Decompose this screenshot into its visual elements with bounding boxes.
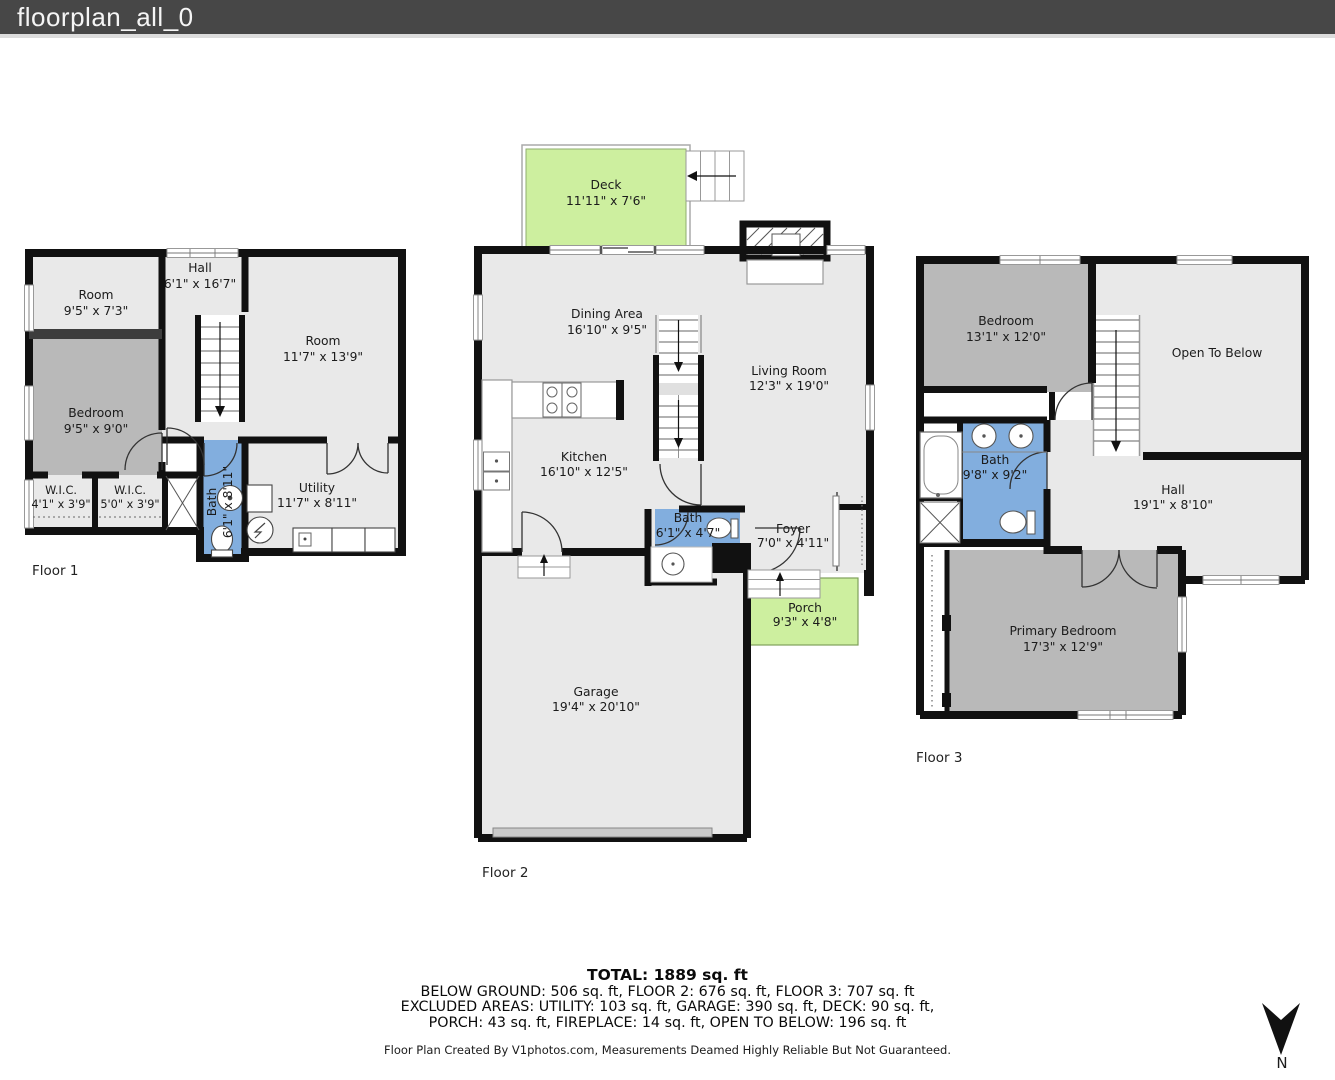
utility-dims: 11'7" x 8'11" bbox=[277, 496, 357, 510]
floor-3-plan: Bedroom 13'1" x 12'0" Open To Below Bath… bbox=[905, 245, 1320, 775]
floor-1-plan: Room 9'5" x 7'3" Hall 6'1" x 16'7" Room … bbox=[20, 240, 440, 590]
wic1-dims: 4'1" x 3'9" bbox=[31, 498, 90, 511]
summary-line-2: EXCLUDED AREAS: UTILITY: 103 sq. ft, GAR… bbox=[0, 1000, 1335, 1015]
summary-line-1: BELOW GROUND: 506 sq. ft, FLOOR 2: 676 s… bbox=[0, 985, 1335, 1000]
deck-dims: 11'11" x 7'6" bbox=[566, 194, 646, 208]
hall3-name: Hall bbox=[1161, 483, 1185, 497]
room-b-name: Room bbox=[305, 334, 340, 348]
deck-name: Deck bbox=[591, 178, 623, 192]
title-bar: floorplan_all_0 bbox=[0, 0, 1335, 38]
deck-stairs bbox=[686, 151, 744, 201]
primary-name: Primary Bedroom bbox=[1009, 624, 1116, 638]
porch-name: Porch bbox=[788, 601, 822, 615]
bath3-name: Bath bbox=[981, 453, 1010, 467]
room-a-dims: 9'5" x 7'3" bbox=[64, 304, 128, 318]
bath2-name: Bath bbox=[674, 511, 703, 525]
floor1-stairs bbox=[201, 315, 239, 422]
room-a-name: Room bbox=[78, 288, 113, 302]
hall-dims: 6'1" x 16'7" bbox=[164, 277, 236, 291]
north-arrow: N bbox=[1245, 995, 1305, 1070]
dining-dims: 16'10" x 9'5" bbox=[567, 323, 647, 337]
north-arrow-icon bbox=[1262, 1003, 1300, 1055]
bedroom3-dims: 13'1" x 12'0" bbox=[966, 330, 1046, 344]
bath-dims: 6'1" x 8'11" bbox=[221, 466, 235, 538]
floor-2-plan: Deck 11'11" x 7'6" Dining Area 16'10" x … bbox=[470, 140, 880, 885]
utility-name: Utility bbox=[299, 481, 335, 495]
porch-steps bbox=[748, 570, 820, 598]
wic2-dims: 5'0" x 3'9" bbox=[100, 498, 159, 511]
hall-name: Hall bbox=[188, 261, 212, 275]
floorplan-viewer: floorplan_all_0 bbox=[0, 0, 1335, 1080]
wic2-name: W.I.C. bbox=[114, 484, 146, 497]
bedroom-name: Bedroom bbox=[68, 406, 124, 420]
garage-name: Garage bbox=[573, 685, 618, 699]
bath3-dims: 9'8" x 9'2" bbox=[963, 468, 1027, 482]
summary-line-3: PORCH: 43 sq. ft, FIREPLACE: 14 sq. ft, … bbox=[0, 1016, 1335, 1031]
open-below-label: Open To Below bbox=[1172, 346, 1263, 360]
garage-dims: 19'4" x 20'10" bbox=[552, 700, 640, 714]
floor3-stairs bbox=[1093, 315, 1140, 456]
foyer-dims: 7'0" x 4'11" bbox=[757, 536, 829, 550]
hall3-dims: 19'1" x 8'10" bbox=[1133, 498, 1213, 512]
bath-name: Bath bbox=[205, 488, 219, 517]
kitchen-name: Kitchen bbox=[561, 450, 607, 464]
living-name: Living Room bbox=[751, 364, 827, 378]
garage-door bbox=[493, 828, 712, 837]
kitchen-dims: 16'10" x 12'5" bbox=[540, 465, 628, 479]
north-label: N bbox=[1276, 1054, 1287, 1070]
wic1-name: W.I.C. bbox=[45, 484, 77, 497]
total-area: TOTAL: 1889 sq. ft bbox=[0, 966, 1335, 985]
window-title: floorplan_all_0 bbox=[17, 2, 194, 33]
bath2-dims: 6'1" x 4'7" bbox=[656, 526, 720, 540]
dining-name: Dining Area bbox=[571, 307, 643, 321]
disclaimer: Floor Plan Created By V1photos.com, Meas… bbox=[0, 1043, 1335, 1057]
bedroom-dims: 9'5" x 9'0" bbox=[64, 422, 128, 436]
porch-dims: 9'3" x 4'8" bbox=[773, 615, 837, 629]
bedroom3-name: Bedroom bbox=[978, 314, 1034, 328]
primary-dims: 17'3" x 12'9" bbox=[1023, 640, 1103, 654]
area-summary: TOTAL: 1889 sq. ft BELOW GROUND: 506 sq.… bbox=[0, 966, 1335, 1057]
living-dims: 12'3" x 19'0" bbox=[749, 379, 829, 393]
floor1-label: Floor 1 bbox=[32, 563, 78, 579]
foyer-name: Foyer bbox=[776, 522, 811, 536]
room-b-dims: 11'7" x 13'9" bbox=[283, 350, 363, 364]
floor3-label: Floor 3 bbox=[916, 750, 962, 766]
floor2-label: Floor 2 bbox=[482, 865, 528, 881]
